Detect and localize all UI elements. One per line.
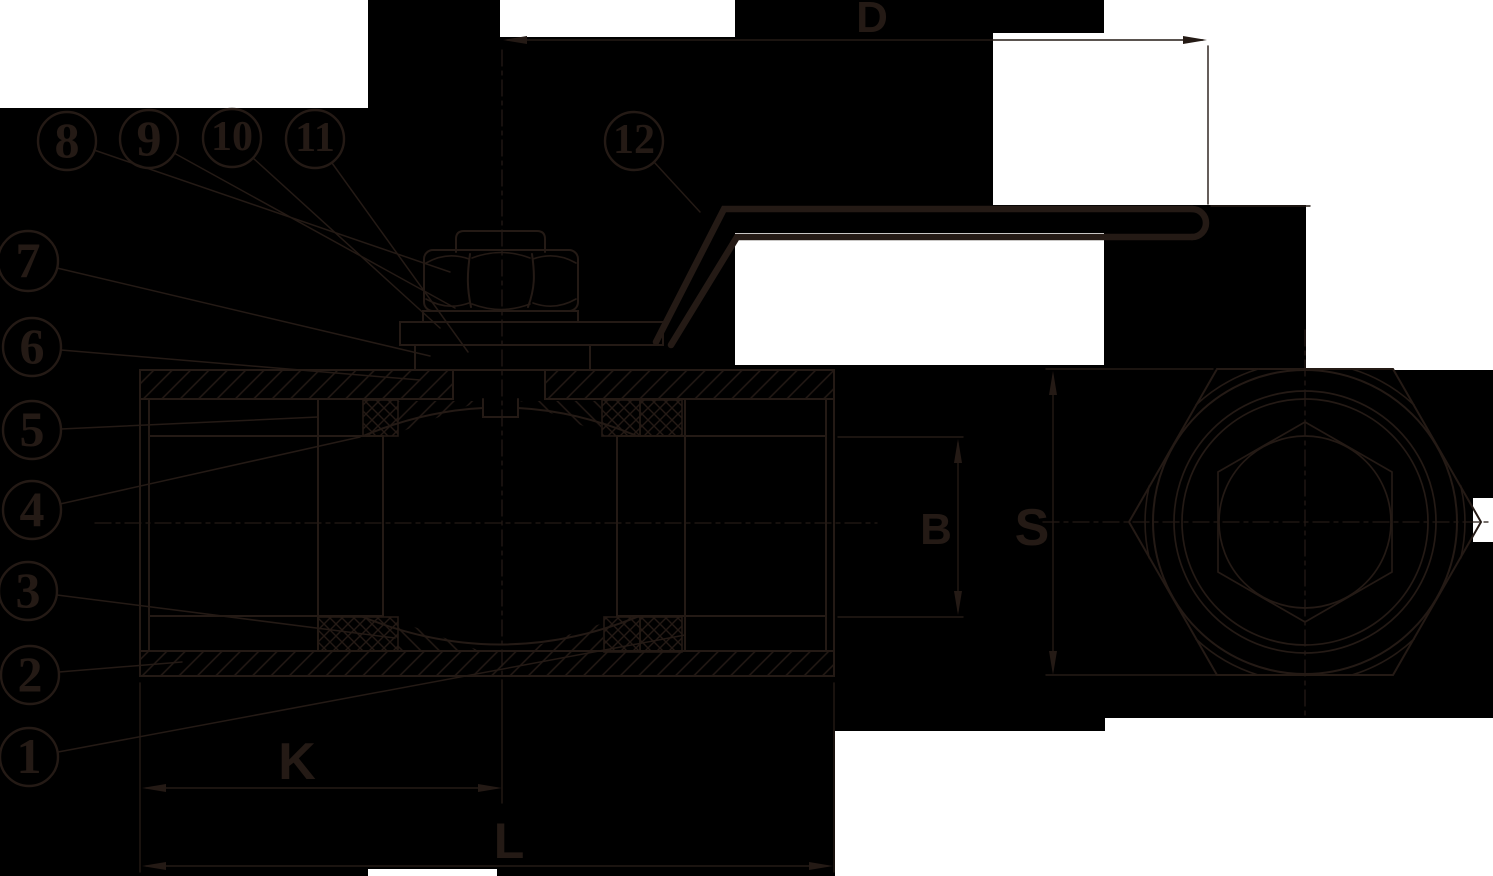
dim-label-D: D [856, 0, 888, 40]
dim-label-S: S [1015, 502, 1050, 554]
dim-label-L: L [494, 816, 525, 866]
callout-2: 2 [18, 649, 43, 699]
callout-11: 11 [295, 117, 335, 159]
valve-seats [318, 400, 682, 652]
callout-12: 12 [613, 119, 655, 161]
callout-1: 1 [17, 731, 42, 781]
stem-nut [424, 250, 578, 311]
callout-4: 4 [20, 484, 45, 534]
stop-plate [400, 322, 663, 345]
callout-6: 6 [20, 321, 45, 371]
stem-cap [456, 231, 545, 252]
washer [423, 311, 578, 322]
callout-7: 7 [16, 235, 41, 285]
callout-5: 5 [20, 404, 45, 454]
dim-label-K: K [278, 736, 316, 788]
callout-9: 9 [137, 113, 162, 163]
callout-8: 8 [55, 115, 80, 165]
dim-label-B: B [920, 508, 952, 552]
drawing-canvas: D B S K L 1 2 3 4 5 6 7 8 9 10 11 12 [0, 0, 1493, 876]
callout-10: 10 [211, 116, 253, 158]
ball [363, 399, 637, 645]
callout-circles [0, 109, 663, 786]
callout-3: 3 [16, 565, 41, 615]
seat-wedges [398, 401, 603, 650]
